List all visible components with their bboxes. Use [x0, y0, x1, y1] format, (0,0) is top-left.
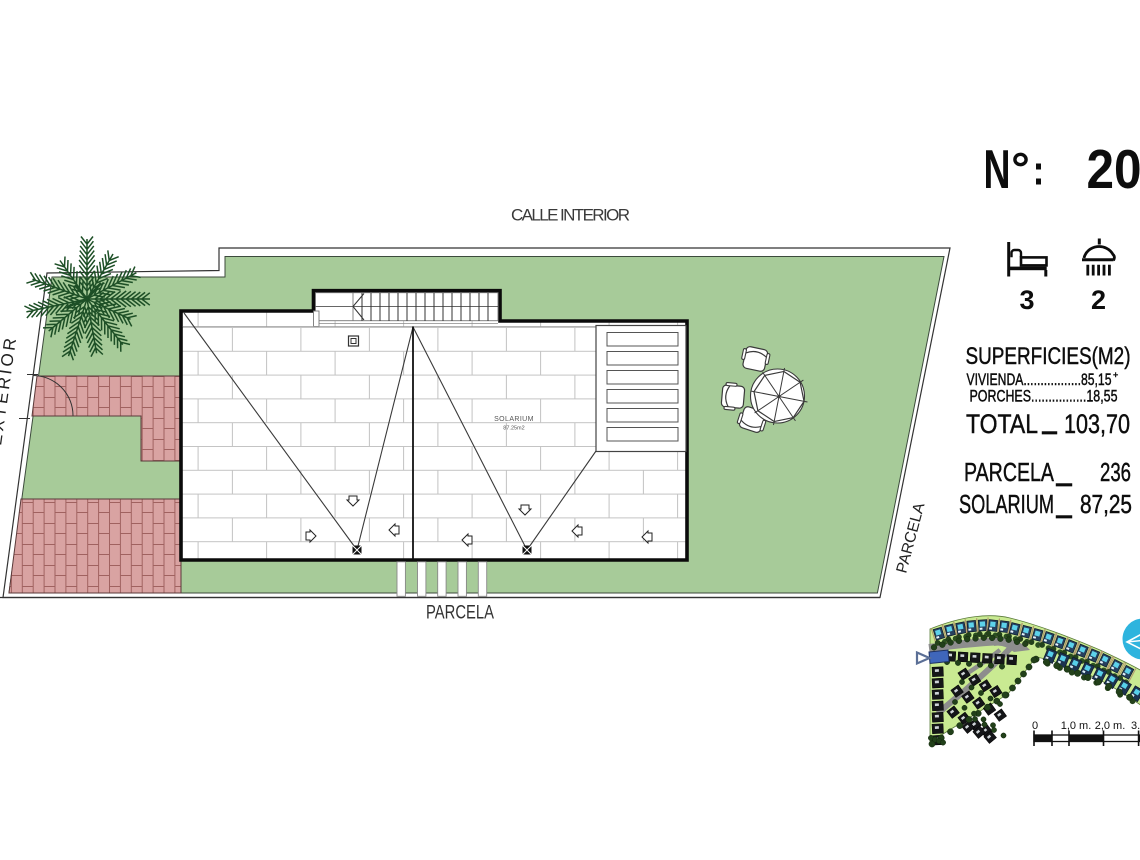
svg-text:87,25: 87,25	[1080, 489, 1132, 519]
svg-text:SUPERFICIES(M2): SUPERFICIES(M2)	[966, 343, 1131, 370]
svg-text:PARCELA: PARCELA	[964, 457, 1054, 487]
svg-text:3: 3	[1019, 285, 1034, 315]
svg-text:2: 2	[1091, 285, 1106, 315]
svg-text:SOLARIUM: SOLARIUM	[494, 416, 534, 423]
svg-text:PORCHES................18,55: PORCHES................18,55	[970, 388, 1118, 406]
svg-text:20: 20	[1087, 140, 1140, 201]
svg-text:103,70: 103,70	[1064, 409, 1130, 439]
svg-text:N: N	[984, 138, 1011, 200]
svg-text:1,0 m.: 1,0 m.	[1061, 720, 1092, 732]
svg-text:236: 236	[1100, 457, 1131, 487]
svg-text:+: +	[1113, 370, 1118, 380]
svg-text:87.25m2: 87.25m2	[503, 426, 524, 432]
svg-text:PARCELA: PARCELA	[426, 603, 494, 624]
svg-text:VIVIENDA.................85,15: VIVIENDA.................85,15	[967, 371, 1112, 389]
svg-text:TOTAL: TOTAL	[966, 409, 1038, 439]
svg-text:3.: 3.	[1131, 720, 1140, 732]
svg-text:2,0 m.: 2,0 m.	[1095, 720, 1126, 732]
svg-text:0: 0	[1032, 720, 1038, 732]
svg-text:SOLARIUM: SOLARIUM	[959, 489, 1054, 519]
svg-text:CALLE INTERIOR: CALLE INTERIOR	[511, 206, 630, 225]
